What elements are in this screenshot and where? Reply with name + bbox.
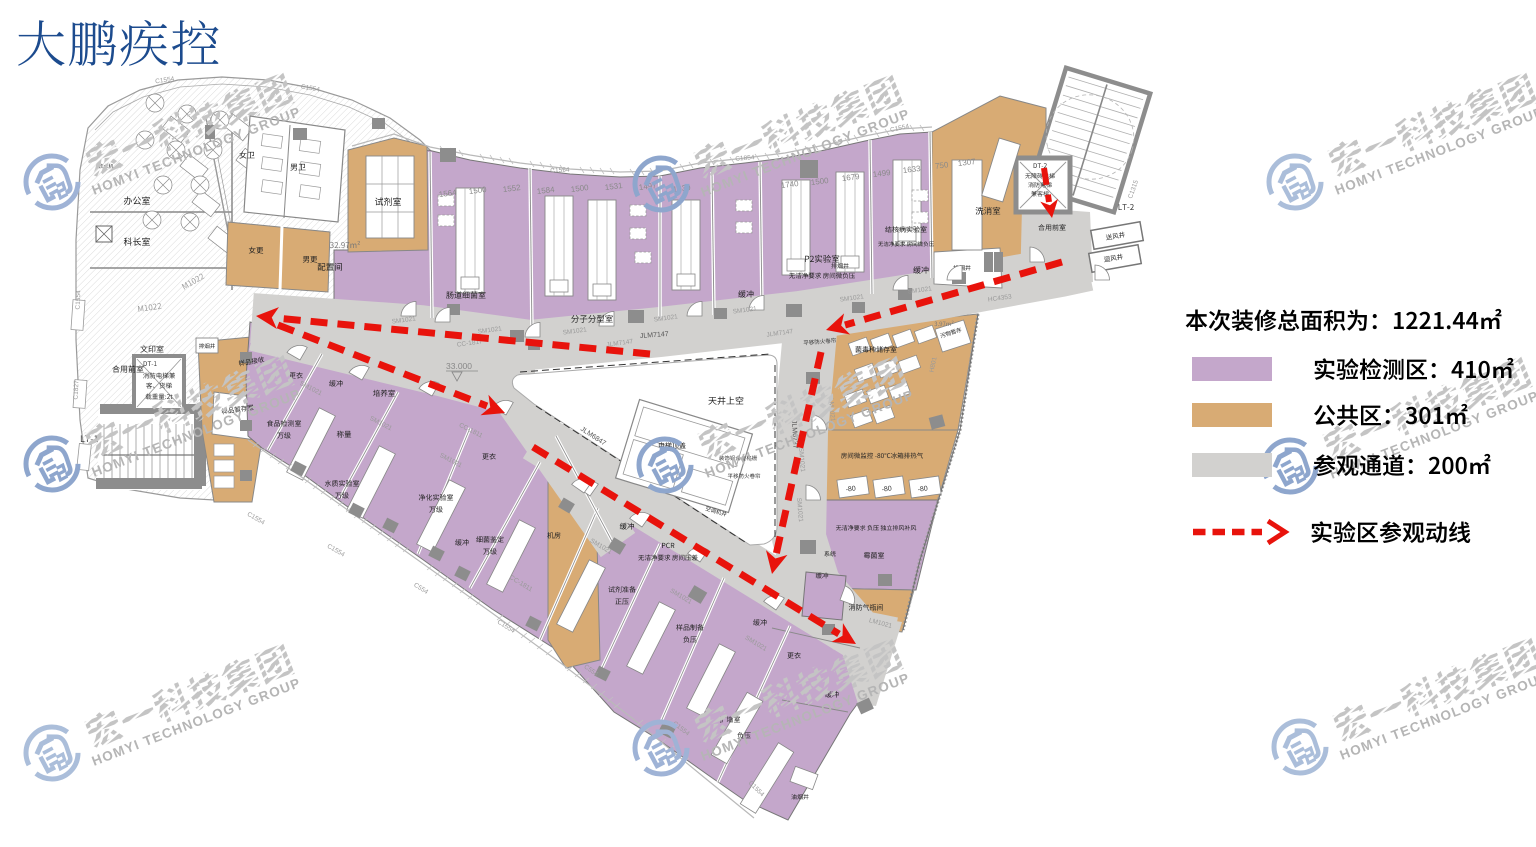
- svg-text:750: 750: [935, 160, 950, 171]
- svg-text:C1827: C1827: [73, 380, 81, 400]
- svg-text:-80: -80: [881, 485, 892, 493]
- svg-text:-80: -80: [917, 485, 928, 493]
- svg-text:-80: -80: [845, 485, 856, 493]
- svg-text:33.000: 33.000: [446, 361, 472, 371]
- svg-text:C1554: C1554: [550, 166, 570, 174]
- svg-text:C1554: C1554: [75, 290, 83, 310]
